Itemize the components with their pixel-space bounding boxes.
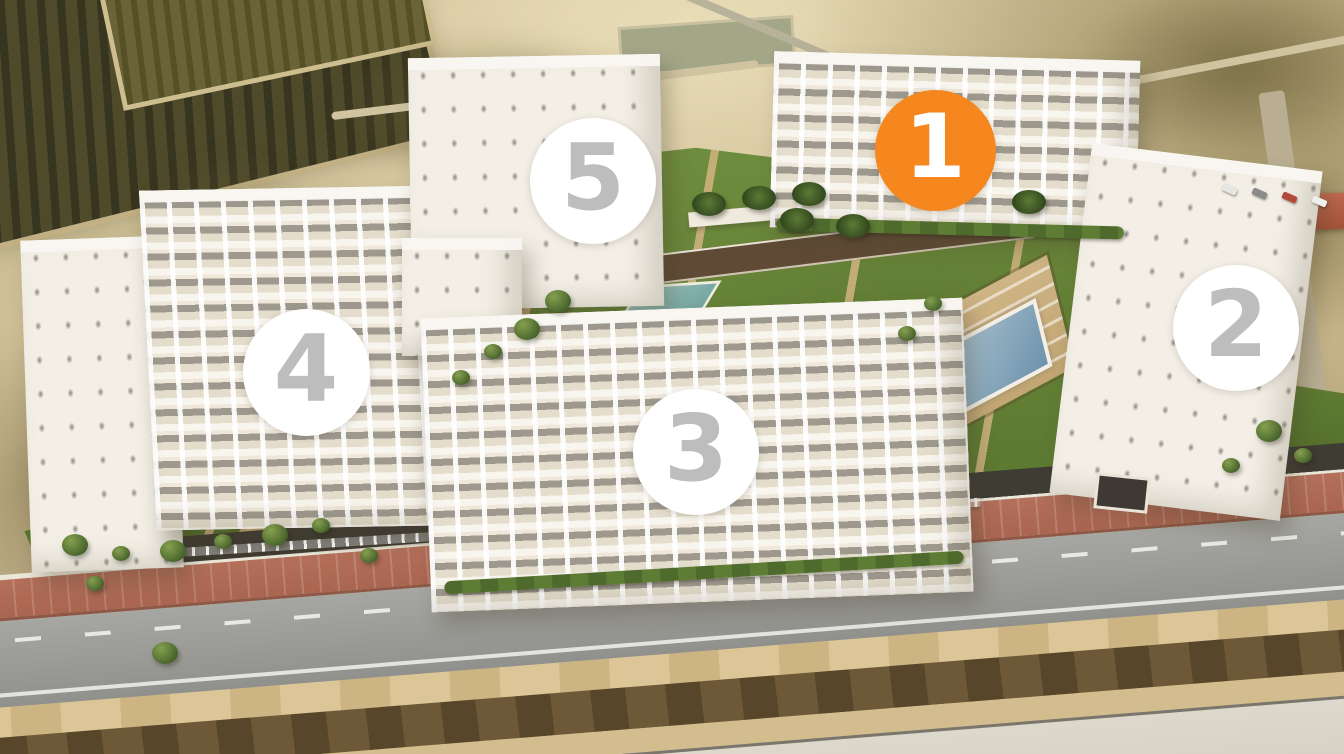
palm-tree [742, 186, 776, 210]
tree [898, 326, 916, 341]
garage-entrance [1097, 476, 1148, 511]
roadside-shrub [152, 642, 178, 664]
palm-tree [692, 192, 726, 216]
tree [452, 370, 470, 385]
tree [160, 540, 186, 562]
tree [545, 290, 571, 312]
phase-marker-4-label: 4 [274, 323, 339, 416]
tree [1256, 420, 1282, 442]
phase-marker-3[interactable]: 3 [633, 389, 759, 515]
tree [360, 548, 378, 563]
tree [924, 296, 942, 311]
phase-marker-2[interactable]: 2 [1173, 265, 1299, 391]
phase-marker-2-label: 2 [1204, 279, 1268, 371]
phase-marker-5-label: 5 [561, 132, 625, 224]
phase-marker-1-label: 1 [904, 103, 965, 191]
palm-tree [780, 208, 814, 232]
aerial-site-plan: 1 2 3 4 5 [0, 0, 1344, 754]
palm-tree [1012, 190, 1046, 214]
tree [312, 518, 330, 533]
palm-tree [836, 214, 870, 238]
tree [1294, 448, 1312, 463]
tree [112, 546, 130, 561]
phase-marker-5[interactable]: 5 [530, 118, 656, 244]
roadside-shrub [86, 576, 104, 591]
tree [484, 344, 502, 359]
palm-tree [792, 182, 826, 206]
tree [1222, 458, 1240, 473]
phase-marker-1[interactable]: 1 [875, 90, 996, 211]
tree [514, 318, 540, 340]
tree [62, 534, 88, 556]
tree [214, 534, 232, 549]
tree [262, 524, 288, 546]
phase-marker-4[interactable]: 4 [243, 309, 370, 436]
phase-marker-3-label: 3 [664, 403, 728, 495]
